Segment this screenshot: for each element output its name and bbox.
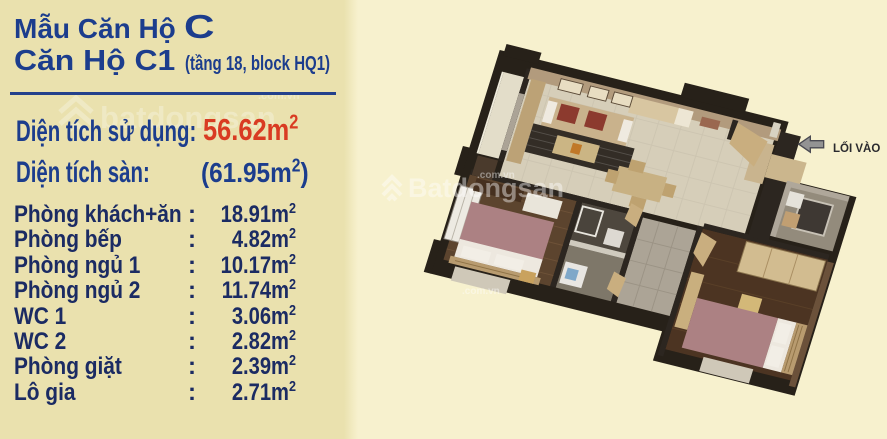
svg-text:.com.vn: .com.vn: [462, 286, 500, 297]
svg-text:.com.vn: .com.vn: [477, 170, 515, 181]
